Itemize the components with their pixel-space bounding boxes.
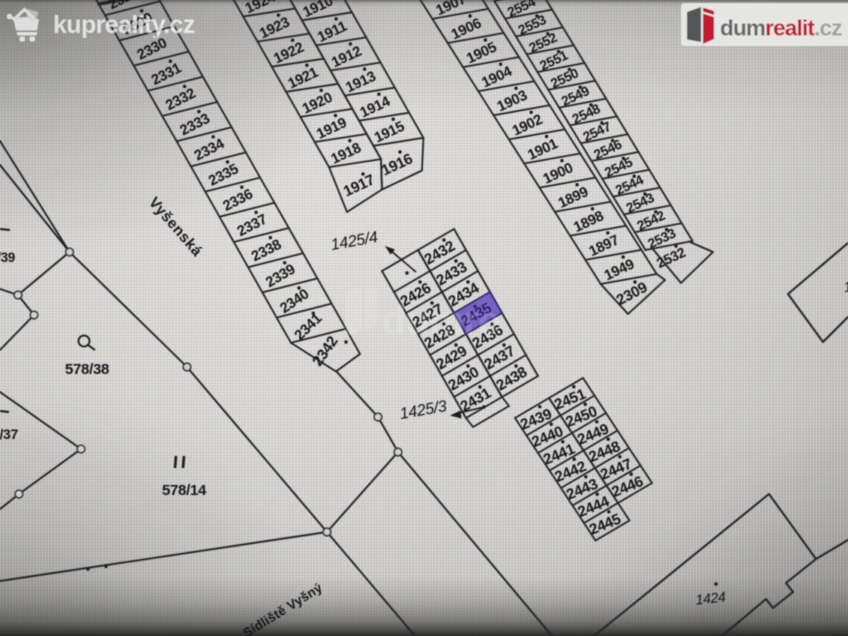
svg-text:kupreality.cz: kupreality.cz	[53, 11, 195, 39]
svg-text:dumrealit.cz: dumrealit.cz	[720, 16, 842, 41]
svg-text:dumre: dumre	[382, 299, 499, 343]
svg-text:/37: /37	[0, 426, 19, 442]
svg-text:578/14: 578/14	[162, 482, 207, 499]
svg-text:578/38: 578/38	[65, 361, 109, 378]
svg-text:1424: 1424	[695, 588, 727, 607]
svg-text:/39: /39	[0, 250, 15, 265]
